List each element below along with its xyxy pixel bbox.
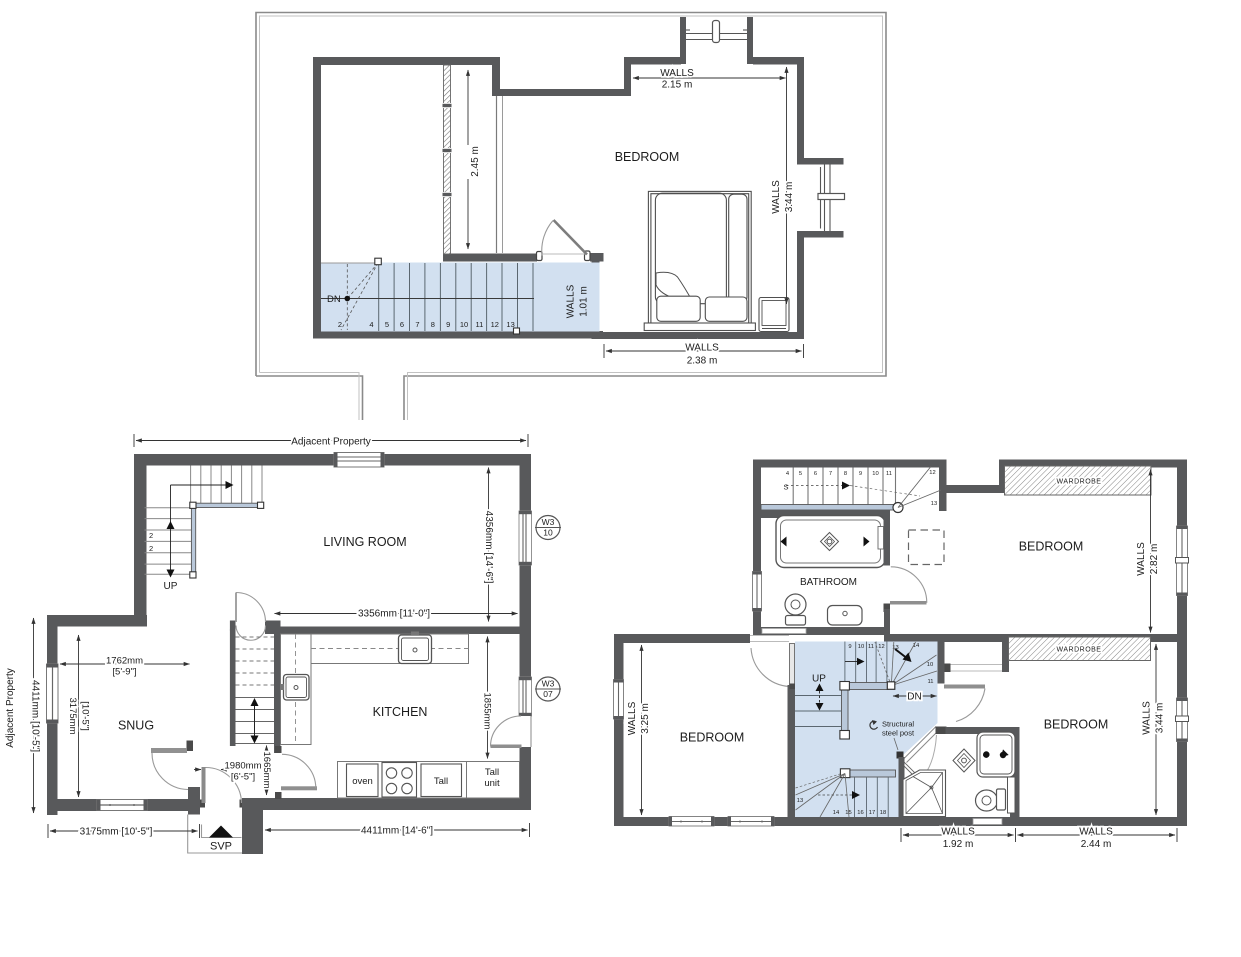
svg-text:11: 11	[868, 644, 874, 650]
svg-text:2: 2	[338, 320, 342, 329]
svg-text:3.44 m: 3.44 m	[1155, 703, 1166, 734]
svg-text:6: 6	[400, 320, 404, 329]
svg-text:[6'-5"]: [6'-5"]	[231, 772, 255, 783]
svg-text:9: 9	[446, 320, 450, 329]
svg-text:10: 10	[872, 471, 878, 477]
svg-text:1762mm: 1762mm	[106, 656, 143, 667]
svg-text:SVP: SVP	[210, 841, 232, 853]
svg-text:SNUG: SNUG	[118, 719, 154, 733]
svg-text:4411mm [14'-6"]: 4411mm [14'-6"]	[361, 826, 433, 837]
svg-text:steel post: steel post	[882, 729, 915, 738]
svg-text:[10'-5"]: [10'-5"]	[80, 701, 91, 730]
svg-text:3356mm [11'-0"]: 3356mm [11'-0"]	[358, 609, 430, 620]
svg-text:WALLS: WALLS	[1079, 827, 1113, 838]
svg-text:7: 7	[415, 320, 419, 329]
svg-text:UP: UP	[812, 674, 826, 685]
svg-text:10: 10	[927, 662, 933, 668]
svg-text:unit: unit	[484, 778, 500, 789]
svg-text:BEDROOM: BEDROOM	[1019, 540, 1084, 554]
svg-text:Structural: Structural	[882, 720, 914, 729]
svg-text:14: 14	[833, 810, 840, 816]
svg-text:WALLS: WALLS	[627, 701, 638, 735]
svg-text:WALLS: WALLS	[566, 284, 577, 318]
svg-text:WARDROBE: WARDROBE	[1057, 479, 1102, 486]
svg-text:11: 11	[476, 320, 484, 329]
svg-text:1980mm: 1980mm	[225, 761, 262, 772]
svg-text:1855mm: 1855mm	[482, 693, 493, 730]
svg-text:WALLS: WALLS	[685, 343, 719, 354]
svg-text:12: 12	[878, 644, 884, 650]
svg-text:W3: W3	[542, 679, 555, 689]
svg-text:Tall: Tall	[485, 767, 499, 778]
svg-text:3.44 m: 3.44 m	[784, 182, 795, 213]
svg-text:9: 9	[848, 644, 851, 650]
svg-text:2.45 m: 2.45 m	[470, 146, 481, 177]
svg-text:6: 6	[814, 471, 817, 477]
svg-text:14: 14	[913, 643, 920, 649]
svg-text:1.92 m: 1.92 m	[943, 839, 974, 850]
svg-text:10: 10	[858, 644, 864, 650]
svg-text:WALLS: WALLS	[771, 180, 782, 214]
svg-text:16: 16	[857, 810, 863, 816]
svg-text:17: 17	[869, 810, 875, 816]
svg-text:7: 7	[829, 471, 832, 477]
svg-text:2: 2	[149, 531, 153, 540]
svg-text:DN: DN	[327, 294, 341, 305]
svg-text:Tall: Tall	[434, 776, 448, 787]
svg-text:13: 13	[797, 798, 803, 804]
svg-text:WARDROBE: WARDROBE	[1057, 647, 1102, 654]
svg-text:S: S	[784, 483, 789, 492]
svg-text:18: 18	[880, 810, 886, 816]
svg-text:Adjacent Property: Adjacent Property	[291, 437, 371, 448]
svg-text:12: 12	[491, 320, 499, 329]
svg-text:1.01 m: 1.01 m	[579, 286, 590, 317]
svg-text:11: 11	[886, 471, 892, 477]
svg-text:WALLS: WALLS	[941, 827, 975, 838]
svg-text:1665mm: 1665mm	[261, 752, 272, 789]
svg-text:2: 2	[149, 544, 153, 553]
svg-text:10: 10	[460, 320, 468, 329]
svg-text:[5'-9"]: [5'-9"]	[112, 667, 136, 678]
svg-text:WALLS: WALLS	[1142, 701, 1153, 735]
svg-text:3.25 m: 3.25 m	[640, 703, 651, 734]
svg-text:Adjacent Property: Adjacent Property	[5, 668, 16, 748]
svg-text:12: 12	[929, 470, 935, 476]
svg-text:BEDROOM: BEDROOM	[615, 150, 680, 164]
svg-text:8: 8	[431, 320, 435, 329]
svg-text:LIVING ROOM: LIVING ROOM	[323, 535, 406, 549]
svg-text:07: 07	[543, 689, 553, 699]
svg-text:11: 11	[927, 679, 933, 685]
svg-text:2.38 m: 2.38 m	[687, 356, 718, 367]
svg-text:10: 10	[543, 528, 553, 538]
svg-text:BEDROOM: BEDROOM	[1044, 718, 1109, 732]
svg-text:4411mm [10'-5"]: 4411mm [10'-5"]	[30, 680, 41, 752]
svg-text:4356mm [14'-6"]: 4356mm [14'-6"]	[483, 511, 494, 584]
svg-text:13: 13	[931, 501, 937, 507]
svg-text:DN: DN	[907, 692, 921, 703]
svg-text:2.82 m: 2.82 m	[1149, 544, 1160, 575]
svg-text:2.44 m: 2.44 m	[1081, 839, 1112, 850]
svg-text:3175mm [10'-5"]: 3175mm [10'-5"]	[80, 827, 153, 838]
svg-text:oven: oven	[352, 776, 373, 787]
svg-text:WALLS: WALLS	[660, 68, 694, 79]
svg-text:8: 8	[844, 471, 847, 477]
svg-text:W3: W3	[542, 517, 555, 527]
svg-text:3175mm: 3175mm	[67, 698, 78, 735]
svg-text:UP: UP	[164, 581, 178, 592]
svg-text:KITCHEN: KITCHEN	[373, 705, 428, 719]
svg-text:9: 9	[859, 471, 862, 477]
svg-text:4: 4	[369, 320, 373, 329]
svg-text:5: 5	[799, 471, 802, 477]
svg-text:BEDROOM: BEDROOM	[680, 731, 745, 745]
svg-text:WALLS: WALLS	[1136, 542, 1147, 576]
svg-text:2.15 m: 2.15 m	[662, 80, 693, 91]
svg-text:BATHROOM: BATHROOM	[800, 577, 857, 588]
svg-text:5: 5	[385, 320, 389, 329]
svg-text:13: 13	[506, 320, 514, 329]
svg-text:15: 15	[845, 810, 851, 816]
